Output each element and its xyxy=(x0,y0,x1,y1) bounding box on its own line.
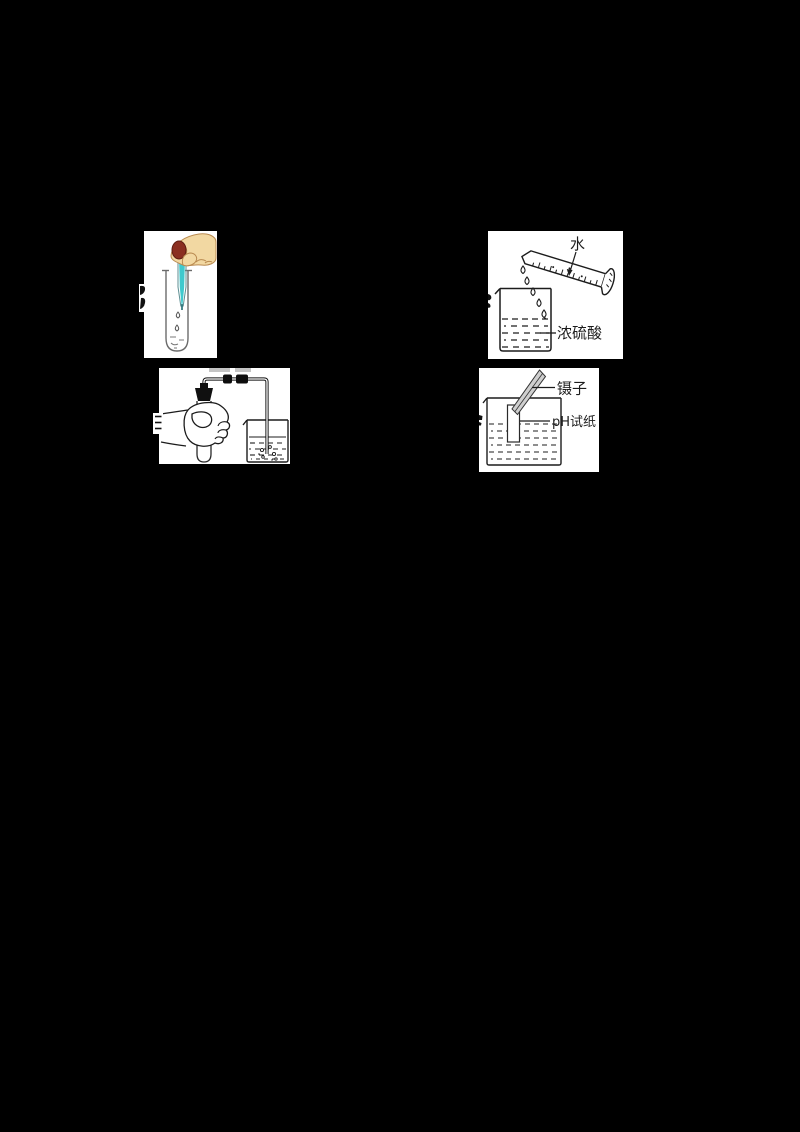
clipped-glyph-fragment xyxy=(153,413,163,434)
tweezers-icon xyxy=(512,370,546,415)
figure-ph-paper-test: 镊子 pH试纸 xyxy=(479,368,599,472)
figure-check-airtightness xyxy=(159,368,290,464)
dilution-figure-drawing: 水 xyxy=(488,231,623,359)
figure-dropper-into-test-tube xyxy=(144,231,217,358)
smudge xyxy=(209,368,230,372)
acid-label: 浓硫酸 xyxy=(557,324,602,342)
water-label: 水 xyxy=(570,235,585,253)
droplet-icons xyxy=(175,312,179,331)
tube-liquid-marks xyxy=(170,337,184,348)
water-drop-icons xyxy=(521,266,546,320)
stopper-icon xyxy=(195,383,213,401)
clipped-glyph-fragment xyxy=(139,284,147,312)
airtightness-figure-drawing xyxy=(159,368,290,464)
beaker-liquid xyxy=(489,424,559,459)
clipped-glyph-fragment xyxy=(488,294,491,308)
dropper-figure-drawing xyxy=(144,231,217,358)
page-background: 水 xyxy=(0,0,800,1132)
hand-icon xyxy=(161,403,230,447)
ph-paper-label: pH试纸 xyxy=(552,415,596,430)
clipped-glyph-fragment xyxy=(479,415,483,426)
smudge xyxy=(235,368,251,372)
ph-test-figure-drawing: 镊子 pH试纸 xyxy=(479,368,599,472)
figure-dilute-sulfuric-acid: 水 xyxy=(488,231,623,359)
tweezers-label: 镊子 xyxy=(557,380,587,398)
test-tube-icon xyxy=(162,271,192,352)
beaker-icon xyxy=(495,289,551,352)
